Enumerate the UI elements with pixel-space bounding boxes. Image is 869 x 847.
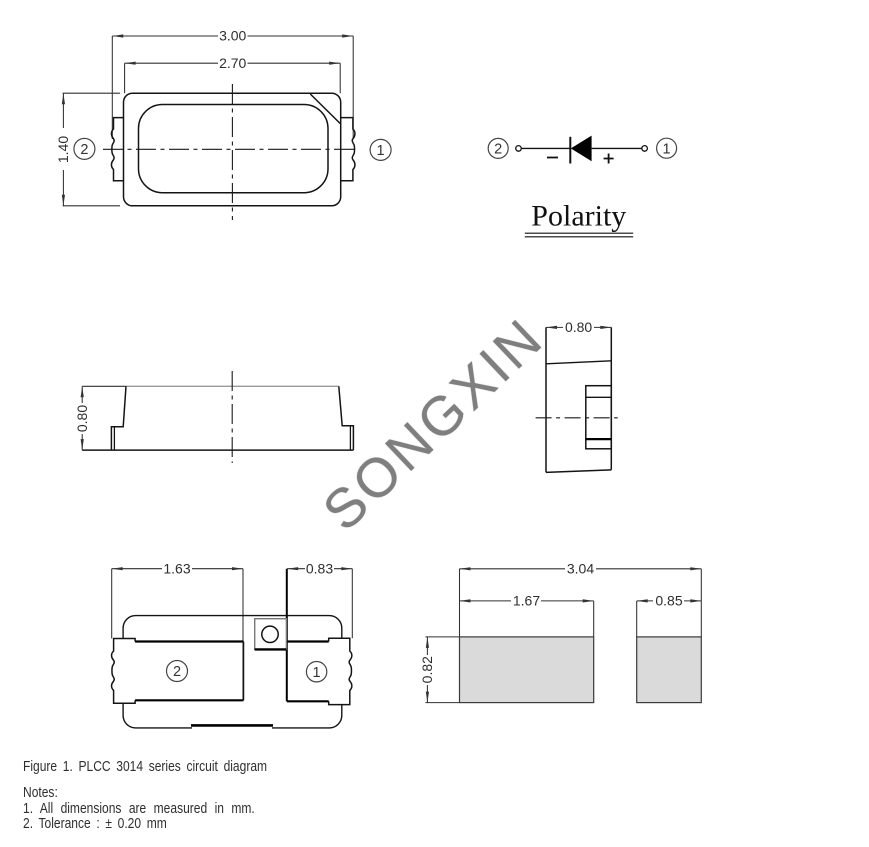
svg-text:Polarity: Polarity: [531, 199, 626, 232]
svg-text:0.83: 0.83: [306, 560, 333, 576]
svg-text:2: 2: [173, 664, 181, 680]
svg-text:1: 1: [377, 143, 385, 159]
svg-text:0.85: 0.85: [655, 593, 682, 609]
svg-text:2.70: 2.70: [219, 55, 246, 71]
svg-text:1: 1: [663, 141, 671, 157]
svg-text:2: 2: [494, 142, 502, 158]
svg-text:1.40: 1.40: [55, 136, 71, 163]
svg-text:1.63: 1.63: [163, 560, 190, 576]
svg-text:0.80: 0.80: [565, 319, 592, 335]
svg-text:3.00: 3.00: [219, 28, 246, 44]
svg-text:0.82: 0.82: [419, 656, 435, 683]
svg-text:3.04: 3.04: [567, 561, 594, 577]
svg-text:2: 2: [80, 142, 88, 158]
svg-text:1.67: 1.67: [513, 593, 540, 609]
svg-text:1: 1: [313, 665, 321, 681]
svg-text:0.80: 0.80: [74, 405, 90, 432]
